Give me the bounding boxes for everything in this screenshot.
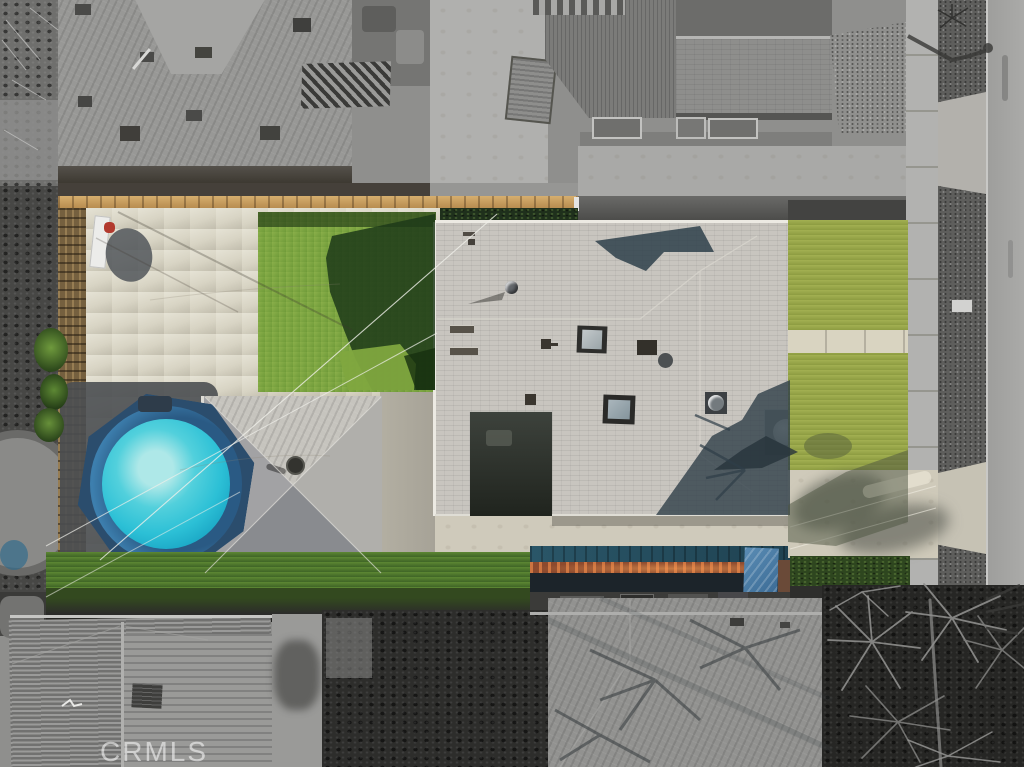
shed-ridge-lines <box>205 397 381 573</box>
palm-shadows-on-roof <box>548 598 832 762</box>
patio-cracks <box>150 284 340 470</box>
crmls-watermark: CRMLS <box>100 736 208 767</box>
bird <box>62 700 82 706</box>
streetlight-shadow <box>908 36 993 60</box>
tree-branches <box>2 8 58 150</box>
front-yard-shadows <box>788 433 908 546</box>
powerline-shadows <box>96 212 352 330</box>
overlay-graphics <box>0 0 1024 767</box>
aerial-photo-scene: CRMLS <box>0 0 1024 767</box>
bottom-left-roof-hips <box>12 626 208 664</box>
parkway-palm-sapling <box>938 4 968 28</box>
bottom-middle-roof-ridges <box>560 600 630 767</box>
roof-tree-shadows <box>468 226 798 515</box>
